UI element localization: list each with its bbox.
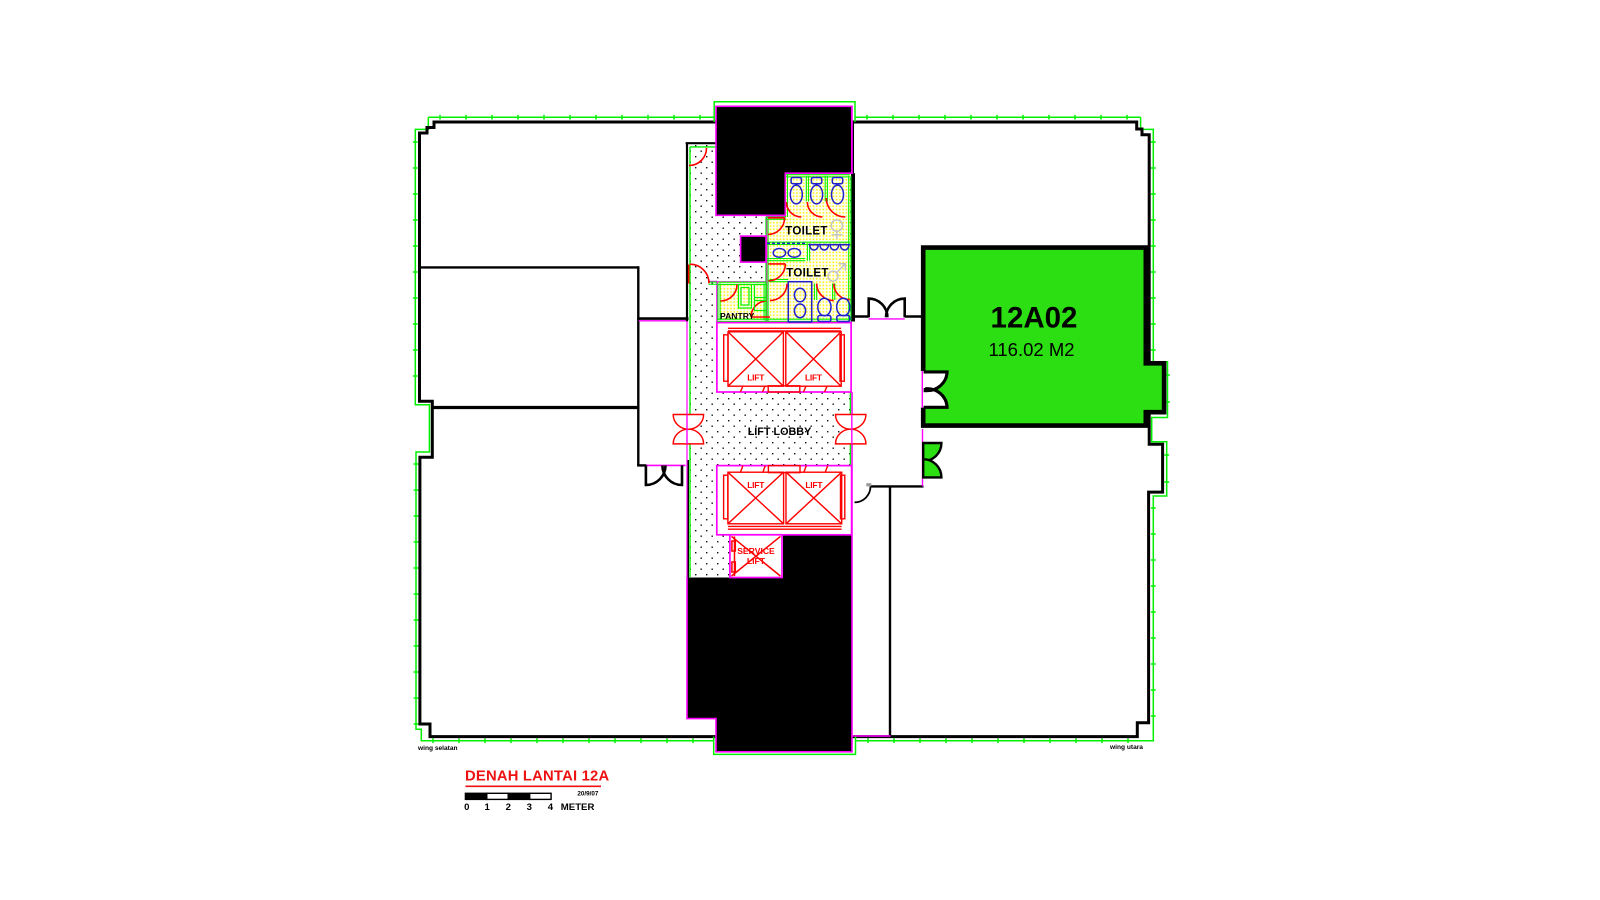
- svg-text:PANTRY: PANTRY: [720, 311, 755, 321]
- svg-text:METER: METER: [561, 802, 595, 813]
- svg-text:116.02 M2: 116.02 M2: [988, 339, 1074, 360]
- svg-text:LIFT: LIFT: [747, 556, 766, 566]
- svg-text:LIFT LOBBY: LIFT LOBBY: [748, 426, 812, 438]
- svg-text:wing utara: wing utara: [1109, 744, 1143, 751]
- svg-text:DENAH LANTAI 12A: DENAH LANTAI 12A: [465, 769, 609, 785]
- svg-text:4: 4: [548, 802, 554, 813]
- svg-text:SERVICE: SERVICE: [737, 546, 775, 556]
- svg-text:20/9/07: 20/9/07: [577, 791, 599, 798]
- svg-text:3: 3: [527, 802, 532, 813]
- svg-text:LIFT: LIFT: [747, 480, 765, 490]
- svg-text:LIFT: LIFT: [747, 373, 765, 383]
- svg-text:LIFT: LIFT: [805, 373, 823, 383]
- svg-text:TOILET: TOILET: [786, 268, 828, 280]
- svg-text:2: 2: [506, 802, 511, 813]
- svg-text:1: 1: [485, 802, 491, 813]
- svg-text:12A02: 12A02: [991, 302, 1078, 335]
- svg-text:TOILET: TOILET: [785, 226, 827, 238]
- svg-text:wing selatan: wing selatan: [417, 745, 458, 752]
- svg-text:LIFT: LIFT: [805, 480, 823, 490]
- svg-text:0: 0: [464, 802, 469, 813]
